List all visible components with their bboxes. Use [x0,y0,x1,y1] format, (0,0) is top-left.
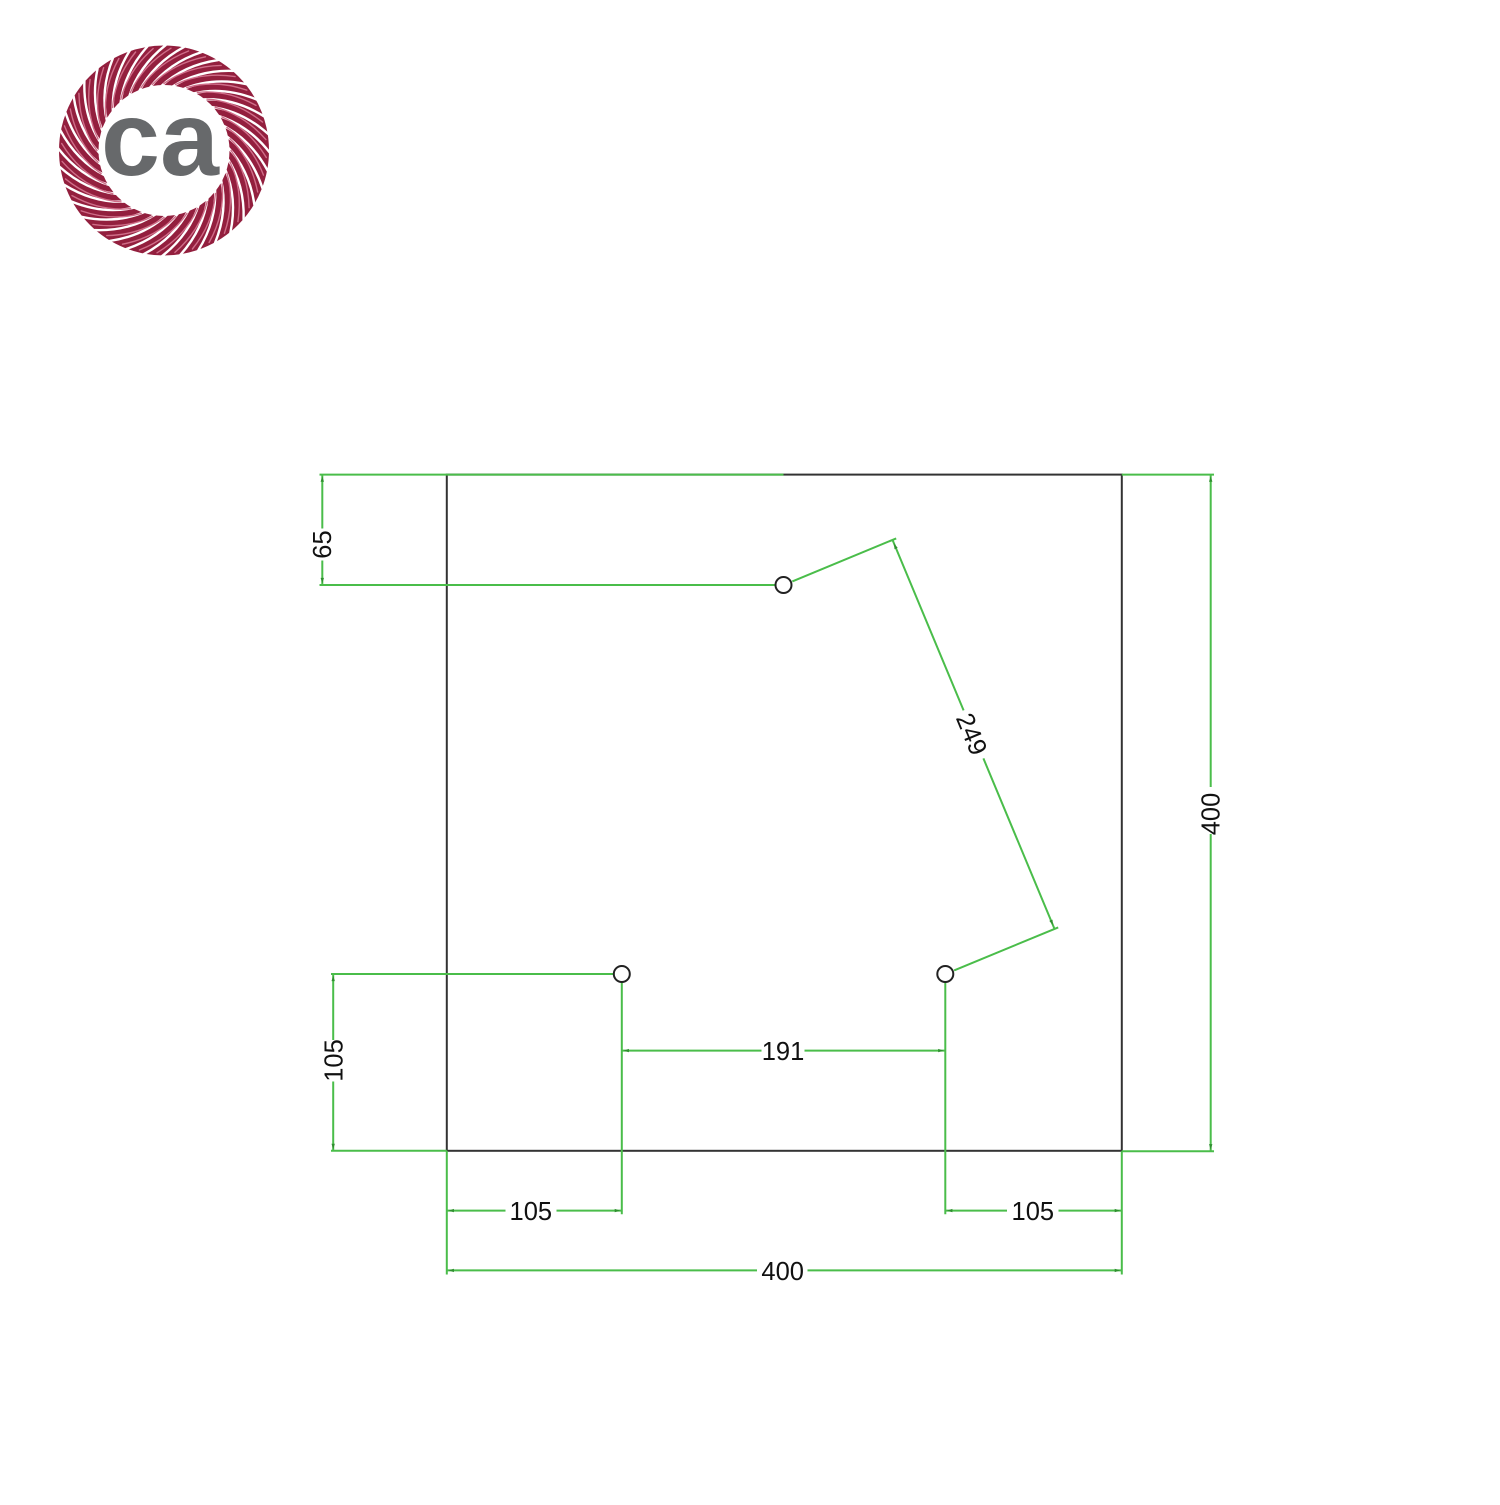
svg-text:191: 191 [762,1038,805,1066]
svg-text:105: 105 [321,1039,349,1082]
svg-text:400: 400 [761,1258,804,1286]
svg-text:105: 105 [510,1198,553,1226]
svg-text:ca: ca [101,80,220,198]
svg-text:400: 400 [1198,793,1226,836]
svg-text:65: 65 [309,530,337,558]
svg-text:105: 105 [1012,1198,1055,1226]
